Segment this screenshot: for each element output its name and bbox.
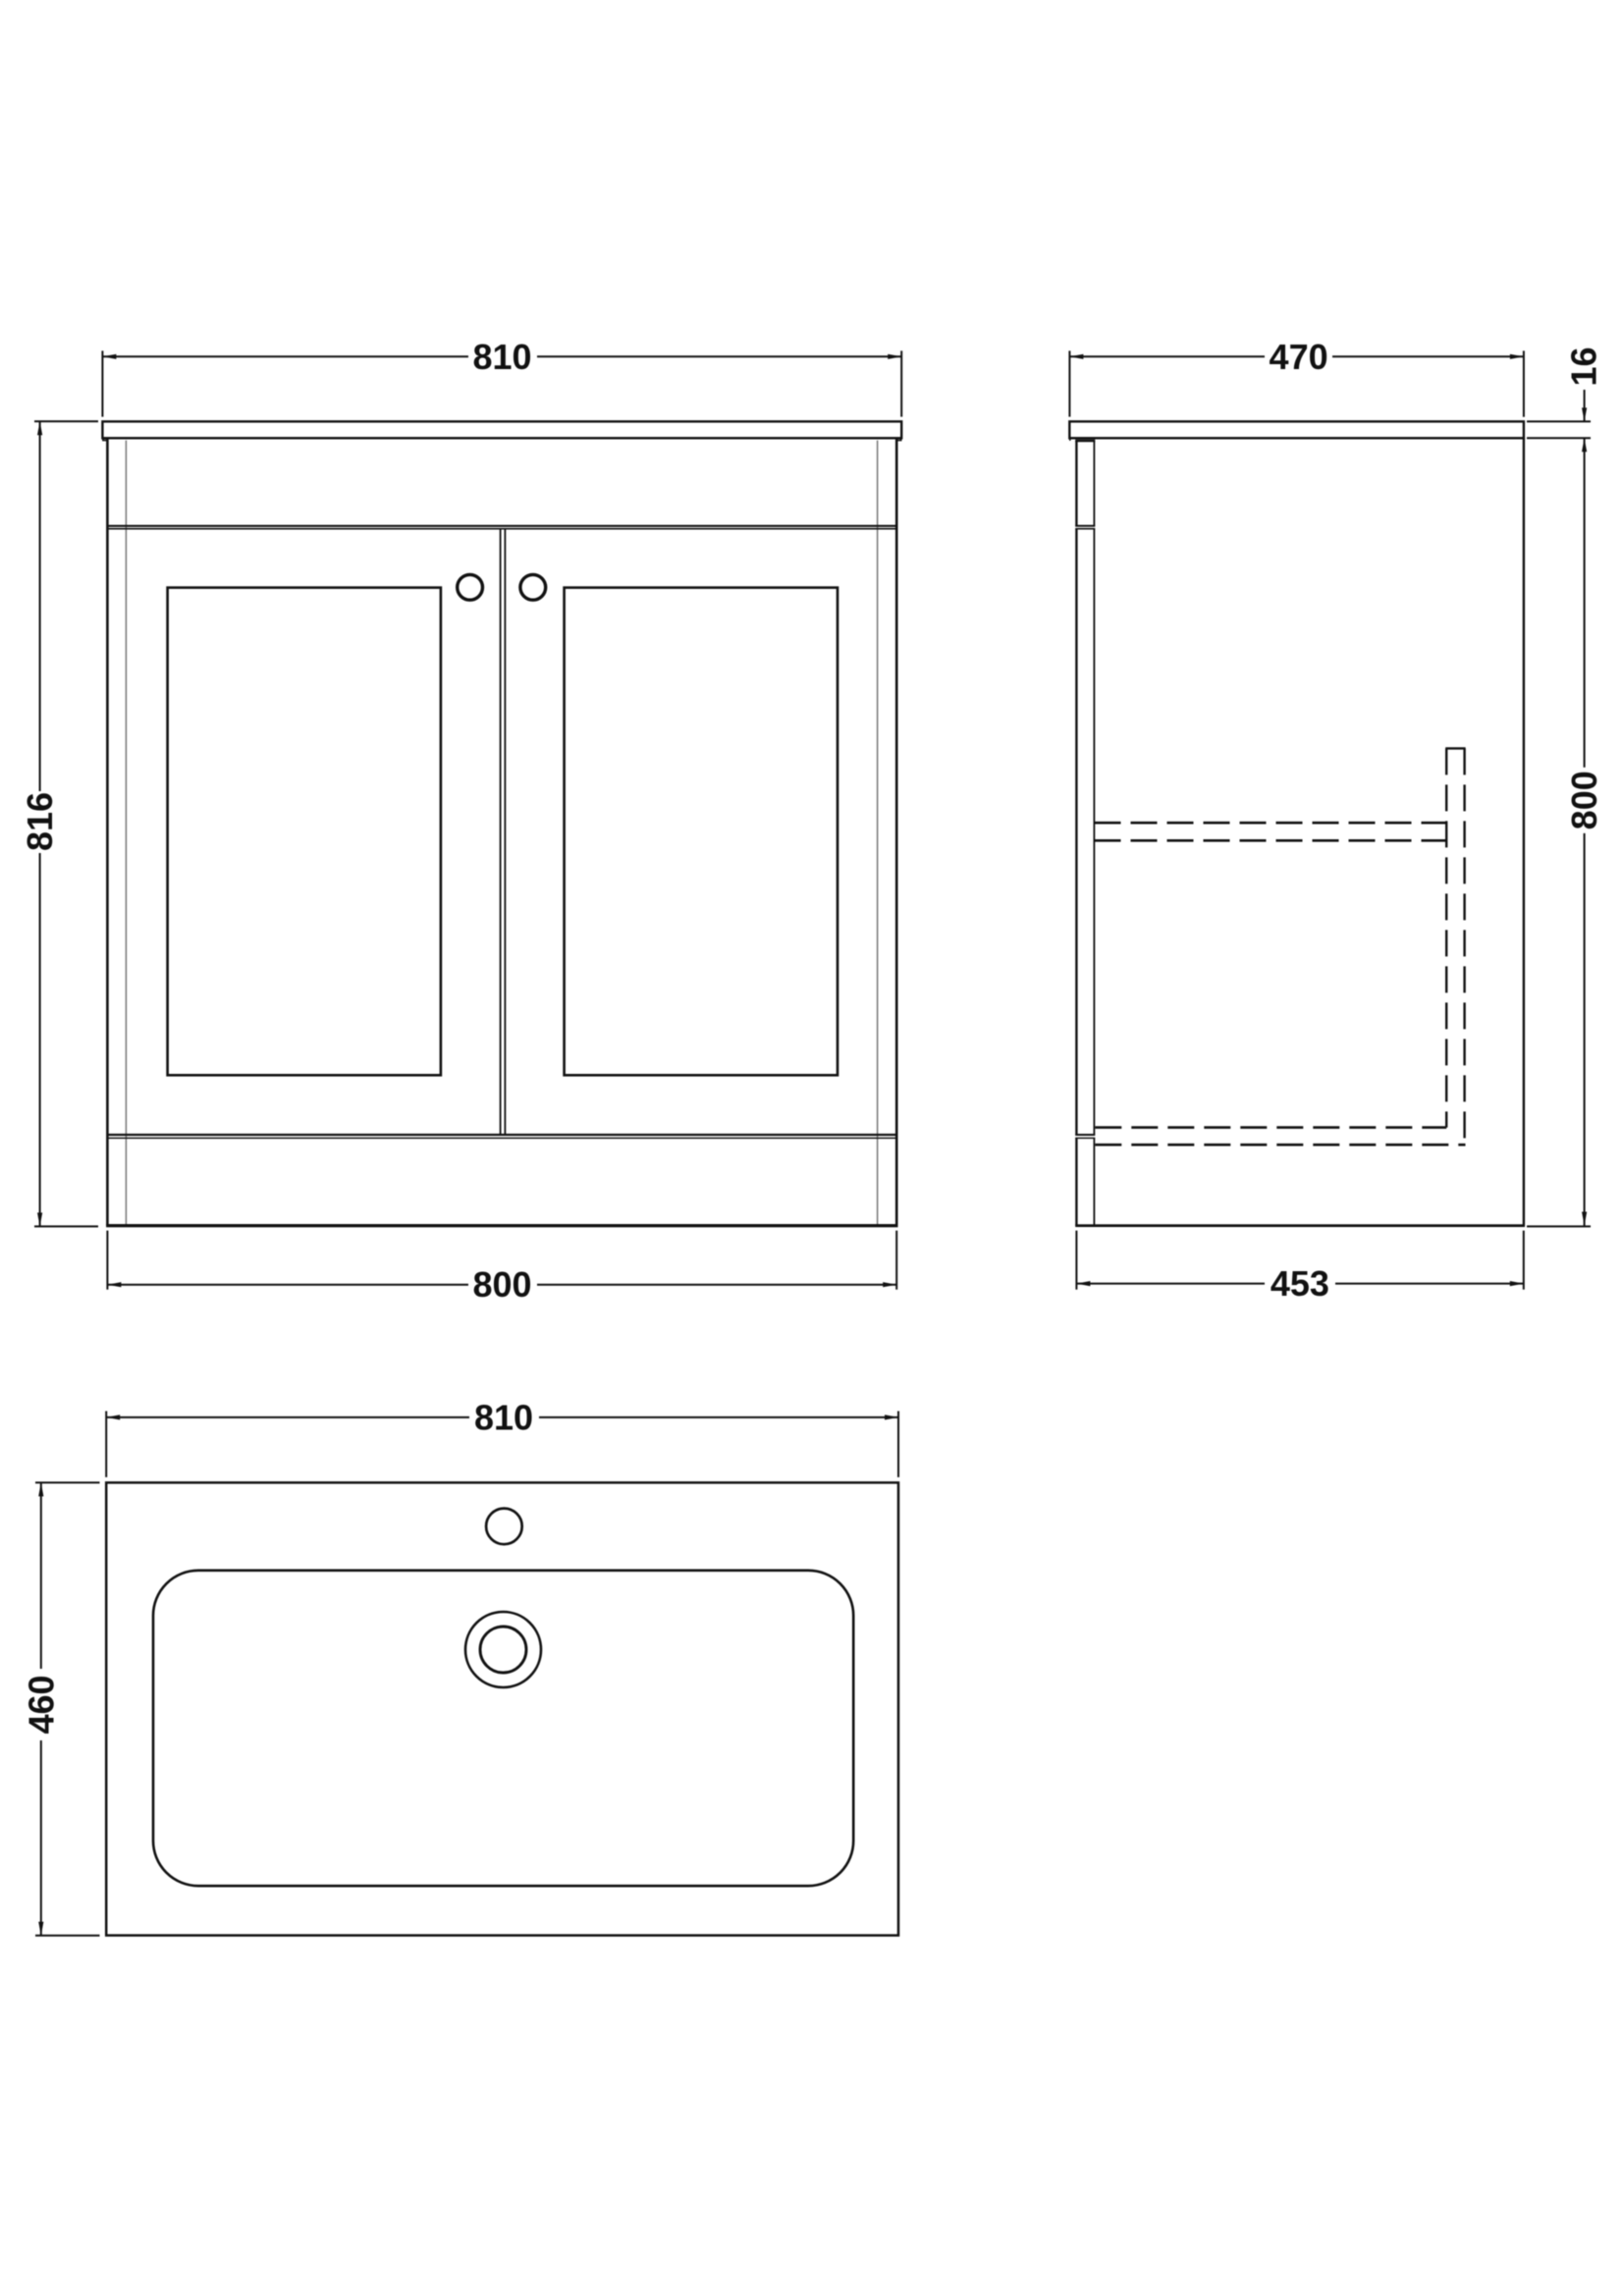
svg-text:460: 460 [21, 1675, 61, 1734]
svg-text:453: 453 [1271, 1263, 1329, 1304]
svg-text:800: 800 [1564, 771, 1604, 829]
svg-text:816: 816 [20, 792, 60, 851]
svg-text:16: 16 [1564, 347, 1604, 386]
svg-text:800: 800 [472, 1264, 531, 1305]
svg-text:810: 810 [472, 337, 531, 377]
svg-text:810: 810 [474, 1397, 533, 1437]
svg-text:470: 470 [1270, 337, 1328, 377]
